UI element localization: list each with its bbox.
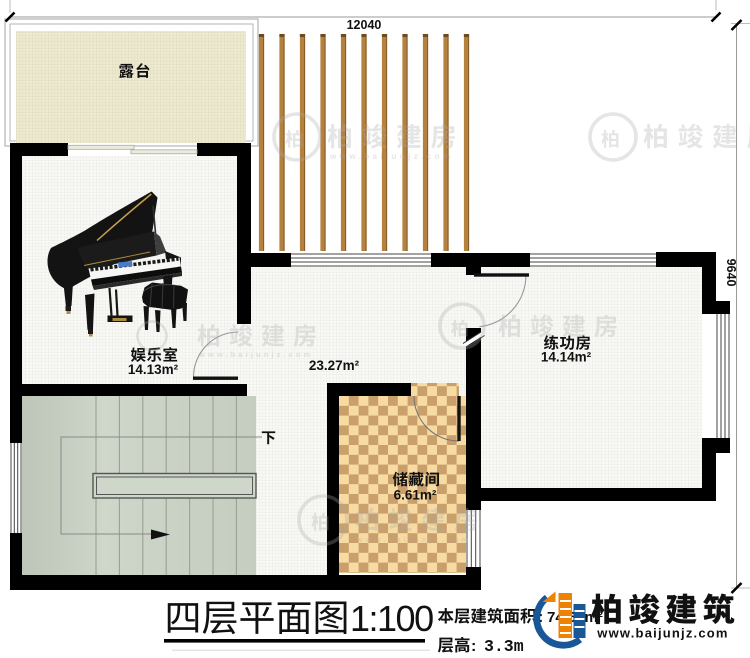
svg-text:www.baijunjz.com: www.baijunjz.com: [329, 152, 453, 161]
svg-text:14.13m²: 14.13m²: [128, 362, 179, 377]
svg-text:www.baijunjz.com: www.baijunjz.com: [356, 535, 471, 544]
svg-text:3.3m: 3.3m: [484, 637, 524, 656]
svg-text:1:100: 1:100: [350, 598, 433, 639]
svg-text:12040: 12040: [347, 18, 382, 32]
svg-text:23.27m²: 23.27m²: [309, 358, 360, 373]
svg-text:6.61m²: 6.61m²: [394, 488, 437, 503]
svg-text::: :: [471, 638, 476, 655]
svg-text:www.baijunjz.com: www.baijunjz.com: [198, 350, 313, 359]
svg-text:14.14m²: 14.14m²: [541, 350, 592, 365]
svg-text:9640: 9640: [724, 259, 738, 287]
svg-text:www.baijunjz.com: www.baijunjz.com: [596, 626, 728, 641]
